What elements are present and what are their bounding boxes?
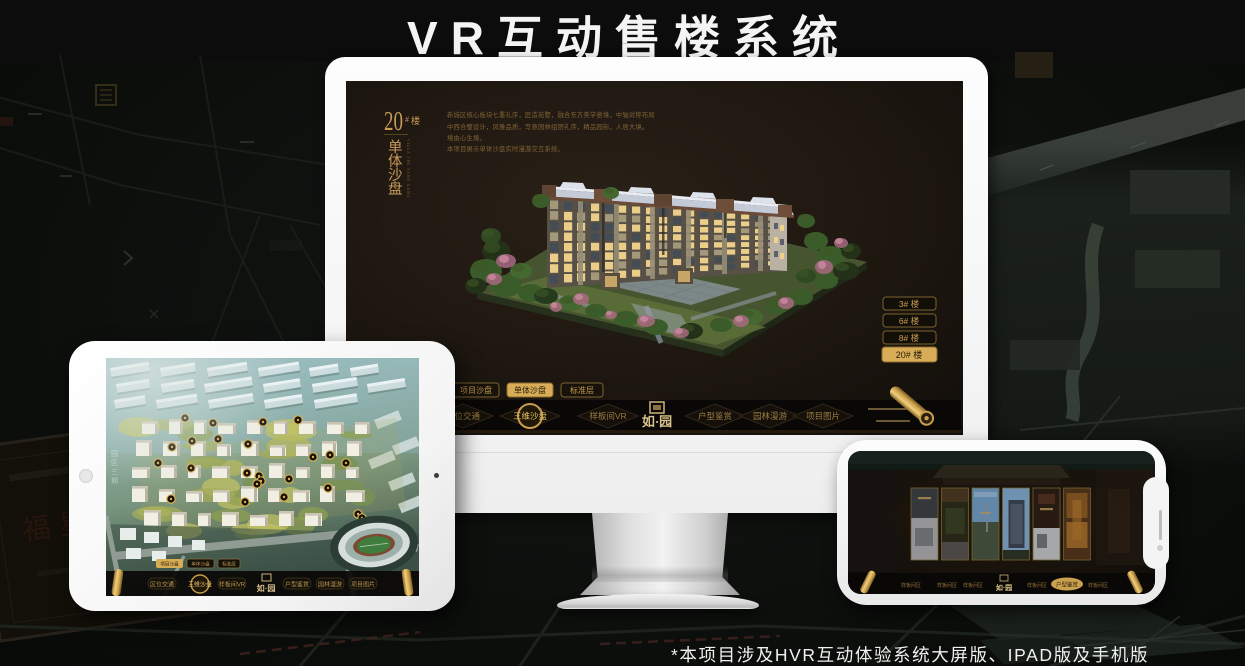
svg-text:样板间区: 样板间区 — [963, 582, 983, 589]
svg-text:项目图片: 项目图片 — [806, 411, 840, 421]
svg-text:20# 楼: 20# 楼 — [896, 349, 923, 360]
svg-text:样板间区: 样板间区 — [1088, 582, 1108, 589]
svg-text:户型鉴赏: 户型鉴赏 — [698, 411, 732, 421]
svg-text:20: 20 — [384, 106, 403, 136]
svg-text:8# 楼: 8# 楼 — [899, 333, 920, 343]
svg-text:标准层: 标准层 — [570, 385, 594, 395]
svg-text:#: # — [405, 115, 409, 124]
svg-text:本项目展示单体沙盘实时漫游交互系统。: 本项目展示单体沙盘实时漫游交互系统。 — [447, 144, 564, 153]
svg-text:户型鉴赏: 户型鉴赏 — [1056, 581, 1079, 589]
svg-text:样板间区: 样板间区 — [1027, 582, 1047, 589]
svg-text:样板间区: 样板间区 — [901, 582, 921, 589]
svg-text:如·园: 如·园 — [996, 583, 1012, 592]
svg-text:盘: 盘 — [388, 180, 403, 198]
svg-text:如·园: 如·园 — [642, 414, 672, 429]
svg-text:3# 楼: 3# 楼 — [899, 299, 920, 309]
svg-text:样板间VR: 样板间VR — [589, 411, 626, 421]
svg-text:园林漫游: 园林漫游 — [753, 411, 788, 421]
svg-text:单体沙盘: 单体沙盘 — [514, 385, 546, 395]
svg-text:境由心生境。: 境由心生境。 — [447, 133, 486, 142]
svg-text:楼: 楼 — [411, 115, 420, 126]
svg-text:VILLA THE SAND GAME: VILLA THE SAND GAME — [406, 139, 410, 199]
svg-text:项目沙盘: 项目沙盘 — [460, 385, 492, 395]
svg-text:样板间区: 样板间区 — [937, 582, 957, 589]
svg-text:6# 楼: 6# 楼 — [899, 316, 920, 326]
svg-text:新城区核心板块七重礼序，匠造苑墅，融合东方美学意境，中轴对称: 新城区核心板块七重礼序，匠造苑墅，融合东方美学意境，中轴对称布局 — [447, 110, 655, 119]
svg-text:中西合璧设计，风雅品质，写意园林组团礼序，精品园街，人居大境: 中西合璧设计，风雅品质，写意园林组团礼序，精品园街，人居大境。 — [447, 122, 648, 131]
svg-text:三维沙盘: 三维沙盘 — [513, 411, 548, 421]
